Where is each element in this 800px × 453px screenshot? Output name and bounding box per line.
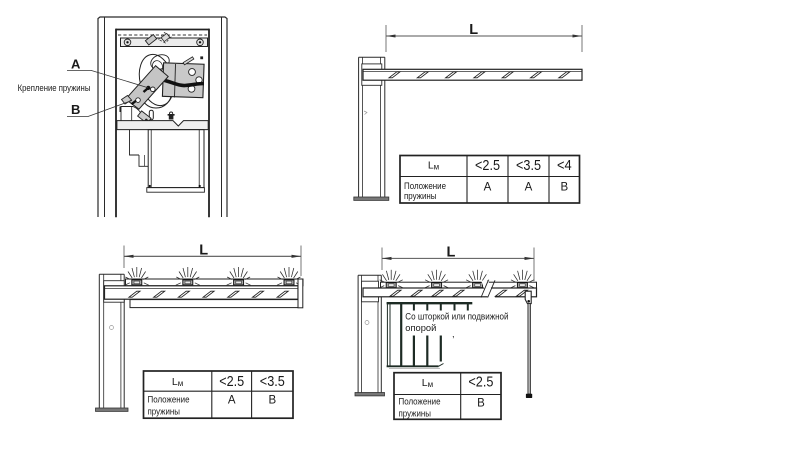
- svg-text:<3.5: <3.5: [260, 374, 285, 390]
- svg-text:<4: <4: [557, 158, 572, 174]
- svg-text:A: A: [228, 395, 236, 407]
- svg-text:L: L: [469, 22, 478, 38]
- svg-text:Lм: Lм: [428, 160, 439, 172]
- svg-text:пружины: пружины: [404, 191, 437, 201]
- svg-text:B: B: [477, 397, 485, 409]
- svg-text:<2.5: <2.5: [475, 158, 500, 174]
- svg-text:Положение: Положение: [404, 181, 446, 191]
- svg-text:A: A: [525, 182, 533, 194]
- svg-text:B: B: [560, 182, 568, 194]
- svg-text:Положение: Положение: [399, 396, 441, 406]
- svg-text:пружины: пружины: [148, 407, 181, 417]
- svg-text:<2.5: <2.5: [219, 374, 244, 390]
- svg-text:Крепление пружины: Крепление пружины: [18, 83, 91, 93]
- svg-text:L: L: [447, 245, 456, 261]
- svg-text:опорой: опорой: [405, 323, 436, 333]
- svg-text:Положение: Положение: [148, 394, 190, 404]
- svg-text:<3.5: <3.5: [516, 158, 541, 174]
- svg-text:пружины: пружины: [399, 408, 432, 418]
- svg-text:A: A: [484, 182, 492, 194]
- svg-text:B: B: [71, 102, 80, 117]
- svg-text:<2.5: <2.5: [468, 375, 493, 391]
- svg-text:A: A: [71, 56, 81, 71]
- svg-text:B: B: [268, 395, 276, 407]
- svg-text:Со шторкой или подвижной: Со шторкой или подвижной: [405, 312, 508, 322]
- svg-text:,: ,: [452, 329, 455, 339]
- svg-text:Lм: Lм: [422, 377, 433, 389]
- svg-text:Lм: Lм: [172, 376, 183, 388]
- svg-text:L: L: [199, 243, 208, 259]
